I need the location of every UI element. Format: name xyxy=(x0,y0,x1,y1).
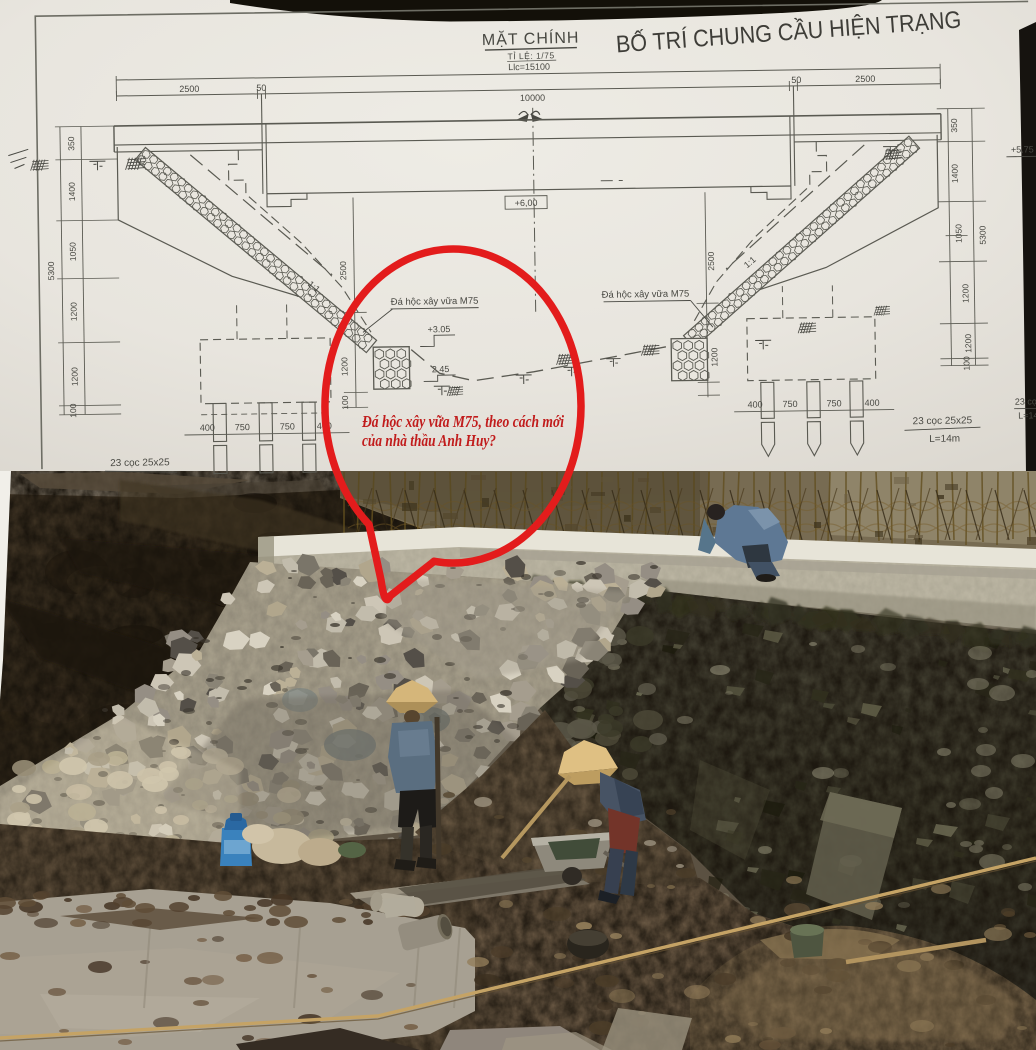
svg-text:Đá hộc xây vữa M75: Đá hộc xây vữa M75 xyxy=(391,296,479,308)
svg-text:1200: 1200 xyxy=(963,334,973,353)
svg-text:1200: 1200 xyxy=(960,284,970,303)
svg-text:L=14m: L=14m xyxy=(929,434,960,445)
svg-text:2500: 2500 xyxy=(706,251,716,270)
svg-text:1200: 1200 xyxy=(339,357,349,376)
svg-text:23 cọc 25x25: 23 cọc 25x25 xyxy=(913,415,973,427)
svg-text:2500: 2500 xyxy=(338,261,348,280)
svg-text:5300: 5300 xyxy=(46,261,56,280)
svg-text:Đá hộc xây vữa M75: Đá hộc xây vữa M75 xyxy=(602,289,690,301)
svg-text:+6,00: +6,00 xyxy=(515,198,538,208)
svg-text:Llc=15100: Llc=15100 xyxy=(508,62,550,73)
svg-text:1200: 1200 xyxy=(69,302,79,321)
svg-text:2500: 2500 xyxy=(179,84,199,94)
svg-text:350: 350 xyxy=(66,136,76,151)
svg-text:TỈ LỆ: 1/75: TỈ LỆ: 1/75 xyxy=(507,49,554,61)
svg-text:10000: 10000 xyxy=(520,93,545,103)
svg-text:23 cọc 25x25: 23 cọc 25x25 xyxy=(110,457,170,469)
svg-text:750: 750 xyxy=(280,421,295,431)
svg-text:2500: 2500 xyxy=(855,74,875,84)
svg-text:Đá hộc xây vữa M75, theo cách: Đá hộc xây vữa M75, theo cách mới xyxy=(361,412,564,431)
svg-text:1200: 1200 xyxy=(709,347,719,366)
svg-text:350: 350 xyxy=(949,118,959,133)
svg-text:750: 750 xyxy=(827,398,842,408)
svg-text:23 cọc: 23 cọc xyxy=(1015,396,1036,406)
svg-text:+3.05: +3.05 xyxy=(427,324,450,334)
svg-text:1200: 1200 xyxy=(69,367,79,386)
svg-text:100: 100 xyxy=(68,403,78,418)
svg-text:400: 400 xyxy=(200,423,215,433)
svg-text:+5.75: +5.75 xyxy=(1011,144,1034,154)
svg-text:của nhà thầu Anh Huy?: của nhà thầu Anh Huy? xyxy=(362,431,496,450)
svg-text:750: 750 xyxy=(235,422,250,432)
svg-text:L=14: L=14 xyxy=(1018,410,1036,420)
svg-text:1050: 1050 xyxy=(953,224,963,243)
svg-text:750: 750 xyxy=(783,399,798,409)
svg-text:50: 50 xyxy=(791,75,801,85)
svg-text:5300: 5300 xyxy=(977,225,987,244)
svg-text:400: 400 xyxy=(864,398,879,408)
svg-text:100: 100 xyxy=(961,356,971,371)
svg-text:1400: 1400 xyxy=(950,164,960,183)
svg-text:1050: 1050 xyxy=(68,242,78,261)
svg-text:1400: 1400 xyxy=(67,182,77,201)
svg-text:400: 400 xyxy=(748,399,763,409)
